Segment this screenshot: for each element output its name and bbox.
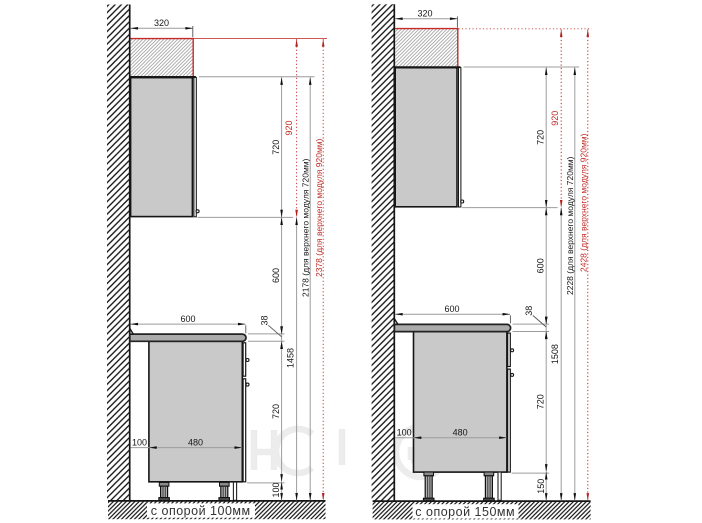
svg-text:600: 600 [444,304,459,314]
svg-text:1458: 1458 [286,348,296,368]
svg-text:720: 720 [536,394,546,409]
svg-text:920: 920 [550,111,560,126]
svg-text:920: 920 [284,120,294,135]
svg-text:320: 320 [417,8,432,18]
svg-text:100: 100 [397,428,412,438]
svg-text:720: 720 [536,130,546,145]
svg-text:600: 600 [180,314,195,324]
svg-text:150: 150 [536,479,546,494]
svg-text:720: 720 [271,404,281,419]
svg-text:с опорой 150мм: с опорой 150мм [415,505,515,519]
svg-text:38: 38 [259,315,269,325]
svg-text:100: 100 [132,437,147,447]
svg-text:480: 480 [453,428,468,438]
svg-text:2378 (для верхнего модуля 920м: 2378 (для верхнего модуля 920мм) [314,138,324,277]
svg-text:1508: 1508 [550,344,560,364]
svg-text:с опорой 100мм: с опорой 100мм [151,504,251,518]
svg-text:600: 600 [271,268,281,283]
svg-text:2178 (для верхнего модуля 720м: 2178 (для верхнего модуля 720мм) [300,158,310,297]
svg-text:38: 38 [524,306,534,316]
svg-text:720: 720 [271,140,281,155]
svg-text:480: 480 [188,437,203,447]
svg-text:320: 320 [154,18,169,28]
svg-text:2428 (для верхнего модуля 920м: 2428 (для верхнего модуля 920мм) [578,133,588,272]
svg-text:2228 (для верхнего модуля 720м: 2228 (для верхнего модуля 720мм) [565,156,575,295]
svg-text:100: 100 [271,482,281,497]
svg-text:600: 600 [536,258,546,273]
